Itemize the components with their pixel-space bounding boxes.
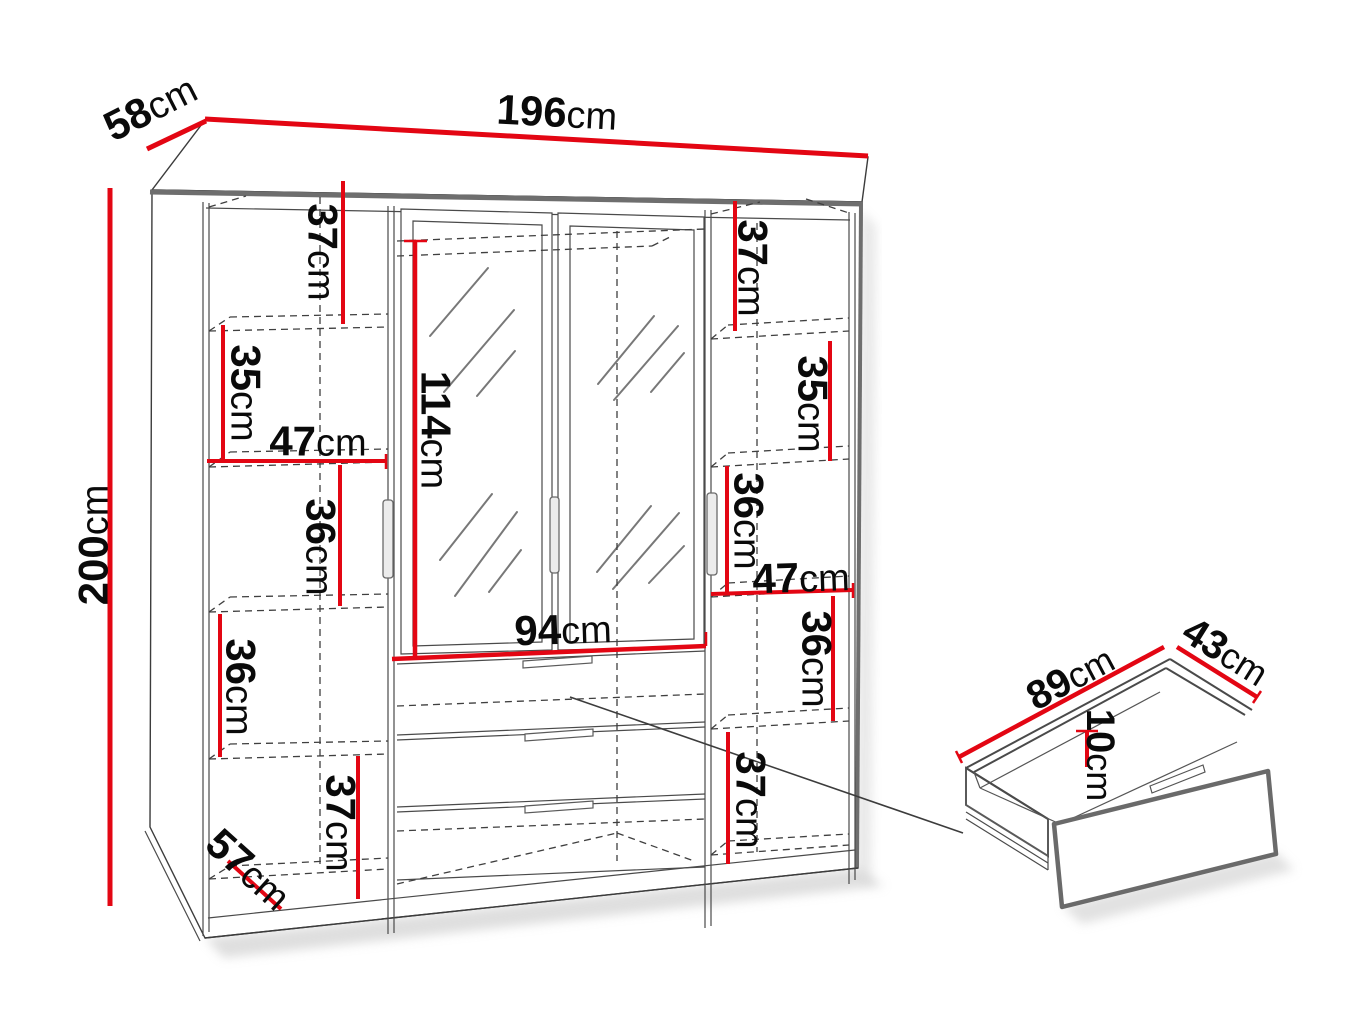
dim-label-depth-58: 58cm [96, 64, 204, 150]
dim-label-left-36-upper: 36cm [297, 498, 344, 595]
dim-label-right-35: 35cm [789, 355, 836, 452]
dim-label-right-37-bottom: 37cm [727, 751, 774, 848]
door-handle-left [383, 500, 393, 578]
dim-label-width-196: 196cm [495, 86, 618, 139]
dim-label-right-37-top: 37cm [729, 219, 776, 316]
door-handle-center [550, 497, 559, 573]
dim-label-right-36-lower: 36cm [793, 610, 840, 707]
dim-label-left-36-lower: 36cm [217, 638, 264, 735]
dim-label-left-35: 35cm [222, 344, 269, 441]
dim-label-left-47: 47cm [269, 418, 366, 465]
dim-label-94: 94cm [514, 604, 613, 654]
dim-label-right-47: 47cm [752, 552, 851, 602]
dim-label-left-37-top: 37cm [299, 203, 346, 300]
dim-label-drawer-89: 89cm [1019, 637, 1121, 719]
diagram-canvas: 196cm 58cm 200cm 37cm 35cm 47cm 36cm 36c… [0, 0, 1364, 1023]
dim-label-left-37-bottom: 37cm [317, 774, 364, 871]
wardrobe-dimension-diagram: 196cm 58cm 200cm 37cm 35cm 47cm 36cm 36c… [0, 0, 1364, 1023]
dim-label-drawer-10: 10cm [1078, 709, 1122, 802]
dim-label-114: 114cm [412, 371, 459, 489]
door-handle-right [707, 493, 717, 575]
dim-label-height-200: 200cm [70, 485, 117, 606]
mirror-door-right [558, 213, 704, 650]
